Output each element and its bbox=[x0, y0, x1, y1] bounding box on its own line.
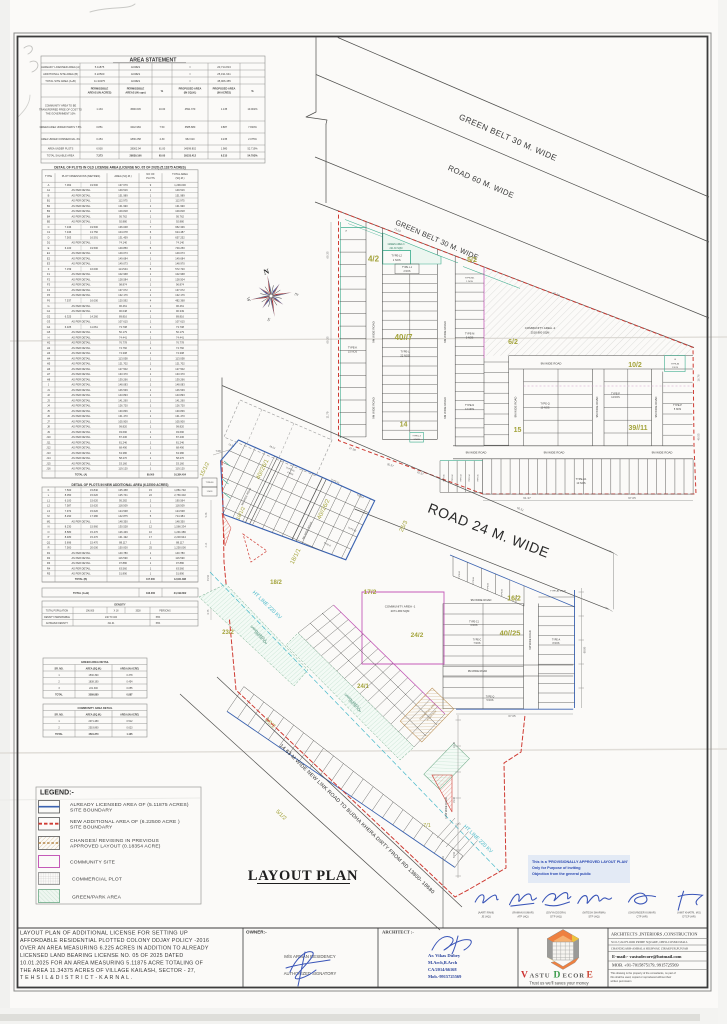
svg-text:63.380: 63.380 bbox=[119, 451, 127, 455]
svg-text:L9: L9 bbox=[345, 231, 347, 233]
svg-text:Q1: Q1 bbox=[47, 540, 51, 544]
svg-text:COMMERCIAL PLOT: COMMERCIAL PLOT bbox=[72, 877, 122, 883]
svg-text:CTP (HR): CTP (HR) bbox=[636, 915, 647, 919]
svg-text:92.880: 92.880 bbox=[119, 220, 127, 224]
svg-text:34399.802: 34399.802 bbox=[184, 147, 197, 151]
svg-text:This is a 'PROVISIONALLY APPRO: This is a 'PROVISIONALLY APPROVED LAYOUT… bbox=[532, 860, 628, 864]
svg-text:COMMUNITY AREA -2: COMMUNITY AREA -2 bbox=[525, 326, 556, 330]
svg-text:99.820: 99.820 bbox=[119, 425, 127, 429]
svg-text:TYPE-S5: TYPE-S5 bbox=[478, 474, 480, 481]
svg-text:137.072: 137.072 bbox=[118, 288, 128, 292]
svg-text:DETAIL OF PLOTS IN NEW ADDITIO: DETAIL OF PLOTS IN NEW ADDITIONAL AREA (… bbox=[72, 483, 169, 487]
svg-text:240 TO 400: 240 TO 400 bbox=[105, 617, 118, 619]
svg-text:15.620: 15.620 bbox=[90, 493, 98, 497]
svg-text:74.140: 74.140 bbox=[119, 241, 127, 245]
svg-text:1 NOS: 1 NOS bbox=[413, 439, 420, 441]
svg-text:(AMIT KHATRI, IAS): (AMIT KHATRI, IAS) bbox=[677, 911, 701, 915]
svg-text:AS PER DETAIL: AS PER DETAIL bbox=[71, 430, 91, 434]
svg-text:0.512: 0.512 bbox=[127, 720, 134, 723]
svg-text:119.120: 119.120 bbox=[175, 467, 185, 471]
svg-text:127.502: 127.502 bbox=[175, 367, 185, 371]
svg-text:68.490: 68.490 bbox=[119, 446, 127, 450]
svg-text:TYPE-B2: TYPE-B2 bbox=[502, 589, 504, 597]
svg-text:89.816: 89.816 bbox=[176, 314, 184, 318]
svg-text:(IN SQ.M.): (IN SQ.M.) bbox=[184, 91, 197, 95]
svg-text:73.708: 73.708 bbox=[176, 325, 184, 329]
svg-text:63.560: 63.560 bbox=[176, 567, 184, 571]
svg-text:13.750: 13.750 bbox=[90, 230, 98, 234]
svg-text:7.346: 7.346 bbox=[65, 230, 72, 234]
svg-text:AS PER DETAIL: AS PER DETAIL bbox=[71, 330, 91, 334]
svg-text:9M WIDE ROAD: 9M WIDE ROAD bbox=[595, 397, 599, 418]
svg-text:TOTAL AREA: TOTAL AREA bbox=[172, 172, 188, 176]
svg-text:COMMUNITY AREA -1: COMMUNITY AREA -1 bbox=[385, 605, 416, 609]
svg-text:92.880: 92.880 bbox=[176, 220, 184, 224]
svg-text:0.378: 0.378 bbox=[127, 674, 134, 677]
svg-text:54.793%: 54.793% bbox=[247, 154, 258, 158]
svg-text:AS PER DETAIL: AS PER DETAIL bbox=[71, 425, 91, 429]
svg-text:11.34375: 11.34375 bbox=[94, 79, 106, 83]
svg-text:15.470: 15.470 bbox=[90, 530, 98, 534]
svg-text:23/2: 23/2 bbox=[222, 630, 234, 636]
svg-text:AS PER DETAIL: AS PER DETAIL bbox=[71, 404, 91, 408]
svg-text:AS PER DETAIL: AS PER DETAIL bbox=[71, 241, 91, 245]
svg-text:7.373: 7.373 bbox=[96, 154, 103, 158]
svg-text:TYPE -L1: TYPE -L1 bbox=[402, 267, 413, 269]
svg-text:12,841.388: 12,841.388 bbox=[174, 578, 187, 581]
svg-text:140.780: 140.780 bbox=[118, 551, 128, 555]
svg-text:7.062: 7.062 bbox=[65, 183, 72, 187]
svg-text:2 NOS: 2 NOS bbox=[404, 271, 411, 273]
svg-text:AS PER DETAIL: AS PER DETAIL bbox=[71, 272, 91, 276]
svg-text:16.000: 16.000 bbox=[90, 299, 98, 303]
svg-text:DTCP (HR): DTCP (HR) bbox=[682, 915, 695, 919]
svg-text:ACRES: ACRES bbox=[131, 65, 140, 69]
svg-text:1 NOS: 1 NOS bbox=[672, 367, 679, 369]
svg-text:3589.880: 3589.880 bbox=[89, 693, 100, 696]
svg-text:16.000: 16.000 bbox=[90, 267, 98, 271]
svg-text:B4: B4 bbox=[47, 215, 51, 219]
svg-text:THE AREA 11.34375 ACRES OF VIL: THE AREA 11.34375 ACRES OF VILLAGE KAILA… bbox=[20, 968, 196, 974]
svg-text:125.741: 125.741 bbox=[118, 493, 128, 497]
svg-text:136.048: 136.048 bbox=[118, 225, 128, 229]
svg-text:1.134: 1.134 bbox=[96, 107, 103, 111]
svg-text:15: 15 bbox=[514, 427, 522, 434]
svg-text:1.135: 1.135 bbox=[221, 107, 228, 111]
svg-text:AS PER DETAIL: AS PER DETAIL bbox=[71, 251, 91, 255]
svg-text:SITE BOUNDARY: SITE BOUNDARY bbox=[70, 825, 113, 831]
svg-text:R1: R1 bbox=[47, 551, 51, 555]
svg-text:6/2: 6/2 bbox=[508, 339, 518, 346]
svg-text:143.893: 143.893 bbox=[118, 393, 128, 397]
svg-text:9M WIDE ROAD: 9M WIDE ROAD bbox=[372, 321, 376, 343]
svg-text:LAYOUT PLAN OF ADDITIONAL LICE: LAYOUT PLAN OF ADDITIONAL LICENSE FOR SE… bbox=[20, 931, 188, 937]
svg-text:4591.370: 4591.370 bbox=[185, 107, 196, 111]
svg-text:ATP (HQ): ATP (HQ) bbox=[517, 915, 528, 919]
svg-text:D1: D1 bbox=[47, 241, 51, 245]
svg-text:40//7: 40//7 bbox=[395, 333, 413, 342]
svg-text:19.500: 19.500 bbox=[90, 225, 98, 229]
svg-text:9M WIDE ROAD: 9M WIDE ROAD bbox=[443, 321, 447, 343]
svg-text:131.192: 131.192 bbox=[118, 535, 128, 539]
svg-text:R3: R3 bbox=[47, 561, 51, 565]
svg-text:52.719%: 52.719% bbox=[247, 147, 258, 151]
svg-text:76.778: 76.778 bbox=[176, 341, 184, 345]
svg-text:7.537: 7.537 bbox=[65, 299, 72, 303]
svg-text:149.850: 149.850 bbox=[118, 246, 128, 250]
svg-text:0.887: 0.887 bbox=[221, 125, 228, 129]
svg-text:149.073: 149.073 bbox=[175, 251, 185, 255]
svg-text:O: O bbox=[47, 530, 49, 534]
svg-text:J11: J11 bbox=[47, 440, 52, 444]
svg-text:68.490: 68.490 bbox=[176, 446, 184, 450]
svg-text:0.235: 0.235 bbox=[221, 137, 228, 141]
svg-text:51.890: 51.890 bbox=[176, 572, 184, 576]
svg-text:COMMUNITY AREA DETAIL: COMMUNITY AREA DETAIL bbox=[78, 706, 113, 710]
svg-text:74.308: 74.308 bbox=[119, 351, 127, 355]
svg-text:OVER AN AREA MEASURING 6.225 A: OVER AN AREA MEASURING 6.225 ACRES IN AD… bbox=[20, 945, 209, 951]
svg-text:9M WIDE ROAD: 9M WIDE ROAD bbox=[468, 669, 487, 673]
svg-text:95.282: 95.282 bbox=[119, 498, 127, 502]
svg-text:PPA: PPA bbox=[156, 622, 161, 625]
svg-text:ECOR: ECOR bbox=[563, 973, 585, 980]
svg-text:482.368: 482.368 bbox=[175, 299, 185, 303]
svg-text:AS PER DETAIL: AS PER DETAIL bbox=[71, 257, 91, 261]
svg-text:G3: G3 bbox=[47, 320, 51, 324]
svg-text:12 NOS: 12 NOS bbox=[611, 396, 620, 399]
svg-text:LEGEND:-: LEGEND:- bbox=[40, 790, 75, 797]
svg-text:PERMISSIBLE: PERMISSIBLE bbox=[91, 87, 109, 91]
svg-text:137.072: 137.072 bbox=[175, 288, 185, 292]
svg-text:146.539: 146.539 bbox=[175, 388, 185, 392]
svg-text:8.050: 8.050 bbox=[65, 493, 72, 497]
svg-text:AS PER DETAIL: AS PER DETAIL bbox=[71, 220, 91, 224]
svg-text:9M WIDE ROAD: 9M WIDE ROAD bbox=[514, 397, 518, 418]
svg-text:24/2: 24/2 bbox=[411, 632, 424, 639]
svg-text:A1: A1 bbox=[47, 188, 51, 192]
svg-text:131.990: 131.990 bbox=[175, 204, 185, 208]
svg-text:X 18: X 18 bbox=[114, 611, 119, 613]
svg-text:M: M bbox=[47, 514, 49, 518]
svg-text:221.30 SQM: 221.30 SQM bbox=[390, 248, 403, 250]
svg-text:113.058: 113.058 bbox=[118, 356, 128, 360]
svg-text:TOTAL POPULATION: TOTAL POPULATION bbox=[46, 610, 69, 613]
svg-text:6.22500: 6.22500 bbox=[95, 72, 105, 76]
svg-text:SITE BOUNDARY: SITE BOUNDARY bbox=[70, 808, 113, 814]
svg-text:141.260: 141.260 bbox=[118, 398, 128, 402]
svg-text:119.120: 119.120 bbox=[118, 467, 128, 471]
svg-text:1,250.000: 1,250.000 bbox=[174, 546, 186, 550]
svg-text:ARCHITECT :-: ARCHITECT :- bbox=[382, 930, 414, 935]
svg-text:73.708: 73.708 bbox=[119, 325, 127, 329]
svg-text:126.720: 126.720 bbox=[175, 404, 185, 408]
svg-text:G5: G5 bbox=[47, 330, 51, 334]
svg-text:15.960: 15.960 bbox=[90, 525, 98, 529]
svg-text:NO OF: NO OF bbox=[146, 172, 155, 176]
svg-text:96.461: 96.461 bbox=[119, 304, 127, 308]
svg-text:95.762: 95.762 bbox=[119, 215, 127, 219]
svg-text:88.117: 88.117 bbox=[176, 540, 184, 544]
svg-text:87.436: 87.436 bbox=[119, 435, 127, 439]
svg-text:ASTU: ASTU bbox=[530, 973, 551, 980]
svg-text:PERMISSIBLE: PERMISSIBLE bbox=[127, 87, 145, 91]
svg-text:AS PER DETAIL: AS PER DETAIL bbox=[71, 393, 91, 397]
svg-text:ADDITIONAL SITE AREA (B): ADDITIONAL SITE AREA (B) bbox=[43, 72, 78, 76]
svg-text:M/S ARMAN RESIDENCY: M/S ARMAN RESIDENCY bbox=[284, 954, 336, 959]
svg-text:13 NOS: 13 NOS bbox=[576, 481, 585, 485]
svg-text:116.590: 116.590 bbox=[118, 556, 128, 560]
svg-text:53.160: 53.160 bbox=[119, 461, 127, 465]
svg-text:124.538: 124.538 bbox=[118, 509, 128, 513]
svg-text:81.246: 81.246 bbox=[119, 440, 127, 444]
svg-text:(DIVYA DOGRA): (DIVYA DOGRA) bbox=[546, 911, 566, 915]
svg-text:K: K bbox=[48, 488, 50, 492]
svg-text:TYPE-L2: TYPE-L2 bbox=[391, 254, 402, 258]
svg-text:65.00: 65.00 bbox=[159, 154, 166, 158]
svg-text:COMMUNITY SITE: COMMUNITY SITE bbox=[70, 860, 116, 866]
svg-text:657.252: 657.252 bbox=[175, 236, 185, 240]
svg-text:AS PER DETAIL: AS PER DETAIL bbox=[71, 456, 91, 460]
svg-text:76.778: 76.778 bbox=[119, 341, 127, 345]
svg-text:93.690: 93.690 bbox=[176, 430, 184, 434]
svg-text:AS PER DETAIL: AS PER DETAIL bbox=[71, 356, 91, 360]
svg-text:TOTAL (B): TOTAL (B) bbox=[75, 578, 87, 581]
svg-text:20,714.813: 20,714.813 bbox=[217, 65, 231, 69]
svg-text:AS PER DETAIL: AS PER DETAIL bbox=[71, 556, 91, 560]
svg-text:APPROVED LAYOUT (0.18354 ACRE): APPROVED LAYOUT (0.18354 ACRE) bbox=[70, 844, 161, 850]
svg-text:2071.480 SQM: 2071.480 SQM bbox=[391, 609, 410, 613]
svg-text:11.79: 11.79 bbox=[326, 411, 330, 418]
svg-text:AS PER DETAIL: AS PER DETAIL bbox=[71, 304, 91, 308]
svg-text:15.38: 15.38 bbox=[453, 796, 456, 803]
svg-text:749.250: 749.250 bbox=[175, 246, 185, 250]
svg-text:952.610: 952.610 bbox=[185, 137, 195, 141]
svg-text:93.690: 93.690 bbox=[119, 430, 127, 434]
svg-text:16.76: 16.76 bbox=[697, 374, 701, 381]
svg-text:7.587: 7.587 bbox=[65, 504, 72, 508]
svg-text:5 NOS: 5 NOS bbox=[487, 700, 494, 702]
svg-text:B5: B5 bbox=[47, 220, 51, 224]
svg-text:121.702: 121.702 bbox=[175, 362, 185, 366]
svg-text:DETAIL OF PLOTS IN OLD LICENSE: DETAIL OF PLOTS IN OLD LICENSE AREA (LIC… bbox=[54, 166, 185, 170]
svg-text:7.820%: 7.820% bbox=[248, 125, 257, 129]
svg-text:10.002%: 10.002% bbox=[247, 107, 258, 111]
svg-text:ALREADY LICENSED AREA (A): ALREADY LICENSED AREA (A) bbox=[41, 65, 80, 69]
svg-text:16,384.454: 16,384.454 bbox=[174, 474, 187, 477]
svg-text:GREEN AREA 3: GREEN AREA 3 bbox=[388, 243, 405, 246]
svg-text:TYPE-P: TYPE-P bbox=[673, 404, 682, 407]
svg-text:AUTHORIZED SIGNATORY: AUTHORIZED SIGNATORY bbox=[284, 971, 337, 976]
svg-text:142.875: 142.875 bbox=[118, 514, 128, 518]
svg-text:SR. NO.: SR. NO. bbox=[55, 667, 64, 670]
svg-text:DENSITY PERMISSIBLE: DENSITY PERMISSIBLE bbox=[44, 617, 70, 619]
svg-text:AS PER DETAIL: AS PER DETAIL bbox=[71, 519, 91, 523]
svg-text:130.836: 130.836 bbox=[175, 409, 185, 413]
svg-text:E3: E3 bbox=[47, 262, 51, 266]
svg-text:135.458: 135.458 bbox=[118, 488, 128, 492]
svg-text:14: 14 bbox=[400, 422, 408, 429]
svg-text:AS PER DETAIL: AS PER DETAIL bbox=[71, 388, 91, 392]
svg-text:74.760: 74.760 bbox=[176, 346, 184, 350]
svg-text:LICENSED LAND BEARING LICENSE: LICENSED LAND BEARING LICENSE NO. 05 OF … bbox=[20, 953, 183, 959]
svg-text:AS PER DETAIL: AS PER DETAIL bbox=[71, 309, 91, 313]
svg-text:6 NOS: 6 NOS bbox=[471, 625, 478, 627]
svg-text:TYPE-C: TYPE-C bbox=[473, 640, 482, 642]
svg-text:149.516: 149.516 bbox=[118, 188, 128, 192]
svg-text:19.500: 19.500 bbox=[90, 246, 98, 250]
svg-text:10/2: 10/2 bbox=[628, 362, 642, 369]
svg-text:50.179: 50.179 bbox=[176, 330, 184, 334]
svg-text:7.972: 7.972 bbox=[65, 509, 72, 513]
svg-text:4.30: 4.30 bbox=[160, 137, 166, 141]
svg-text:29839.196: 29839.196 bbox=[129, 154, 142, 158]
svg-text:107.615: 107.615 bbox=[175, 320, 185, 324]
svg-text:R: R bbox=[48, 546, 50, 550]
svg-text:J15: J15 bbox=[46, 461, 51, 465]
svg-text:AREA (SQ.M.): AREA (SQ.M.) bbox=[86, 667, 102, 670]
svg-text:20.000: 20.000 bbox=[90, 546, 98, 550]
svg-text:Mob.-9915725569: Mob.-9915725569 bbox=[428, 974, 462, 979]
svg-text:149.073: 149.073 bbox=[118, 262, 128, 266]
svg-text:40//25: 40//25 bbox=[500, 629, 521, 638]
svg-text:15.470: 15.470 bbox=[90, 540, 98, 544]
svg-text:Trust us we'll saves your mone: Trust us we'll saves your money bbox=[529, 981, 589, 986]
svg-text:PROPOSED AREA: PROPOSED AREA bbox=[213, 87, 236, 91]
svg-text:B2: B2 bbox=[47, 204, 51, 208]
svg-text:1.0M WIDE ROAD: 1.0M WIDE ROAD bbox=[444, 797, 448, 819]
svg-text:AS PER DETAIL: AS PER DETAIL bbox=[71, 561, 91, 565]
svg-text:AREA (IN ACRE): AREA (IN ACRE) bbox=[120, 713, 139, 716]
svg-text:H3: H3 bbox=[47, 351, 51, 355]
svg-text:102.968: 102.968 bbox=[175, 272, 185, 276]
svg-text:AS PER DETAIL: AS PER DETAIL bbox=[71, 377, 91, 381]
svg-text:AS PER DETAIL: AS PER DETAIL bbox=[71, 278, 91, 282]
svg-text:131.459: 131.459 bbox=[118, 236, 128, 240]
svg-text:112.975: 112.975 bbox=[175, 199, 185, 203]
svg-text:TYPE-K: TYPE-K bbox=[348, 346, 358, 350]
svg-text:15.620: 15.620 bbox=[90, 504, 98, 508]
svg-text:5.696: 5.696 bbox=[65, 540, 72, 544]
svg-text:139.266: 139.266 bbox=[175, 377, 185, 381]
svg-text:AS PER DETAIL: AS PER DETAIL bbox=[71, 372, 91, 376]
svg-text:28002.94: 28002.94 bbox=[130, 147, 141, 151]
svg-text:5 NOS: 5 NOS bbox=[674, 408, 682, 411]
svg-text:TOTAL: TOTAL bbox=[55, 693, 63, 696]
svg-text:TYPE-S6: TYPE-S6 bbox=[671, 364, 680, 366]
svg-text:89.816: 89.816 bbox=[119, 314, 127, 318]
svg-text:3528: 3528 bbox=[135, 611, 141, 613]
svg-text:(SHOVINDER KUMAR): (SHOVINDER KUMAR) bbox=[628, 911, 655, 915]
svg-text:14.260: 14.260 bbox=[90, 314, 98, 318]
svg-text:68.80: 68.80 bbox=[583, 646, 587, 653]
svg-text:TYPE-P: TYPE-P bbox=[611, 393, 620, 396]
svg-text:AS PER DETAIL: AS PER DETAIL bbox=[71, 398, 91, 402]
svg-text:TOTAL SITE AREA (A+B): TOTAL SITE AREA (A+B) bbox=[45, 79, 76, 83]
svg-text:10 NOS: 10 NOS bbox=[541, 406, 550, 409]
svg-text:J13: J13 bbox=[46, 451, 51, 455]
svg-text:40.55: 40.55 bbox=[697, 433, 701, 440]
svg-text:24,199.802: 24,199.802 bbox=[174, 592, 187, 595]
svg-text:AS PER DETAIL: AS PER DETAIL bbox=[71, 320, 91, 324]
svg-text:G2: G2 bbox=[47, 314, 51, 318]
svg-text:2,230.944: 2,230.944 bbox=[174, 535, 186, 539]
svg-text:AS PER DETAIL: AS PER DETAIL bbox=[71, 409, 91, 413]
svg-text:R4: R4 bbox=[47, 567, 51, 571]
svg-text:5/2: 5/2 bbox=[467, 257, 477, 264]
svg-text:10.00: 10.00 bbox=[159, 107, 166, 111]
svg-text:124.538: 124.538 bbox=[175, 509, 185, 513]
svg-text:Objection from the general pub: Objection from the general public bbox=[532, 872, 591, 876]
svg-text:112.975: 112.975 bbox=[118, 199, 128, 203]
svg-text:AS PER DETAIL: AS PER DETAIL bbox=[71, 414, 91, 418]
svg-text:133.370: 133.370 bbox=[175, 372, 185, 376]
svg-text:90.349: 90.349 bbox=[176, 309, 184, 313]
svg-text:952.336: 952.336 bbox=[175, 225, 185, 229]
svg-text:H8: H8 bbox=[47, 377, 51, 381]
svg-text:128.584: 128.584 bbox=[118, 278, 128, 282]
svg-text:131.470: 131.470 bbox=[118, 414, 128, 418]
svg-text:113.058: 113.058 bbox=[175, 356, 185, 360]
svg-text:GREEN/PARK AREA: GREEN/PARK AREA bbox=[72, 895, 122, 901]
svg-text:AS PER DETAIL: AS PER DETAIL bbox=[71, 551, 91, 555]
svg-text:TYPE-S3: TYPE-S3 bbox=[460, 474, 462, 481]
svg-text:29153.412: 29153.412 bbox=[184, 154, 197, 158]
svg-text:572.720: 572.720 bbox=[175, 267, 185, 271]
svg-text:87.436: 87.436 bbox=[176, 435, 184, 439]
svg-text:7.50: 7.50 bbox=[160, 125, 166, 129]
svg-text:130.528: 130.528 bbox=[118, 525, 128, 529]
svg-text:7.500: 7.500 bbox=[65, 546, 72, 550]
svg-text:7 NOS: 7 NOS bbox=[474, 643, 481, 645]
svg-text:AS PER DETAIL: AS PER DETAIL bbox=[71, 451, 91, 455]
svg-text:TYPE-B3: TYPE-B3 bbox=[487, 583, 489, 591]
svg-text:190.564: 190.564 bbox=[175, 498, 185, 502]
svg-text:0.454: 0.454 bbox=[127, 680, 134, 683]
svg-text:109.818: 109.818 bbox=[175, 209, 185, 213]
svg-text:G: G bbox=[47, 304, 49, 308]
svg-text:25,191.641: 25,191.641 bbox=[217, 72, 231, 76]
svg-text:95.762: 95.762 bbox=[176, 215, 184, 219]
svg-text:TYPE-B4: TYPE-B4 bbox=[473, 577, 475, 585]
svg-text:1.980: 1.980 bbox=[221, 147, 228, 151]
svg-text:AS PER DETAIL: AS PER DETAIL bbox=[71, 341, 91, 345]
svg-text:TYPE-Q: TYPE-Q bbox=[486, 697, 495, 699]
svg-text:B: B bbox=[48, 194, 50, 198]
svg-text:AREA UNDER PLOTS: AREA UNDER PLOTS bbox=[48, 147, 74, 151]
svg-text:146.539: 146.539 bbox=[118, 388, 128, 392]
svg-text:24/1: 24/1 bbox=[357, 684, 369, 690]
svg-text:97.880: 97.880 bbox=[176, 561, 184, 565]
svg-text:AS PER DETAIL: AS PER DETAIL bbox=[71, 461, 91, 465]
svg-text:9M WIDE ROAD: 9M WIDE ROAD bbox=[443, 397, 447, 419]
svg-text:74.441: 74.441 bbox=[176, 335, 184, 339]
svg-text:H7: H7 bbox=[47, 372, 51, 376]
svg-text:AS PER DETAIL: AS PER DETAIL bbox=[71, 335, 91, 339]
svg-text:B1: B1 bbox=[47, 199, 51, 203]
svg-text:PPA: PPA bbox=[156, 616, 161, 619]
svg-text:TYPE-L: TYPE-L bbox=[400, 350, 410, 354]
svg-text:9M WIDE ROAD: 9M WIDE ROAD bbox=[652, 451, 673, 455]
svg-text:74.441: 74.441 bbox=[119, 335, 127, 339]
svg-text:58.270: 58.270 bbox=[119, 456, 127, 460]
svg-text:H2: H2 bbox=[47, 346, 51, 350]
svg-text:45,906.455: 45,906.455 bbox=[217, 79, 231, 83]
svg-text:88.117: 88.117 bbox=[119, 540, 127, 544]
svg-text:N: N bbox=[48, 525, 50, 529]
svg-text:118.509: 118.509 bbox=[175, 504, 185, 508]
svg-text:CHANGES/ REVISING IN PREVIOUS: CHANGES/ REVISING IN PREVIOUS bbox=[70, 838, 159, 844]
svg-text:131.470: 131.470 bbox=[175, 414, 185, 418]
